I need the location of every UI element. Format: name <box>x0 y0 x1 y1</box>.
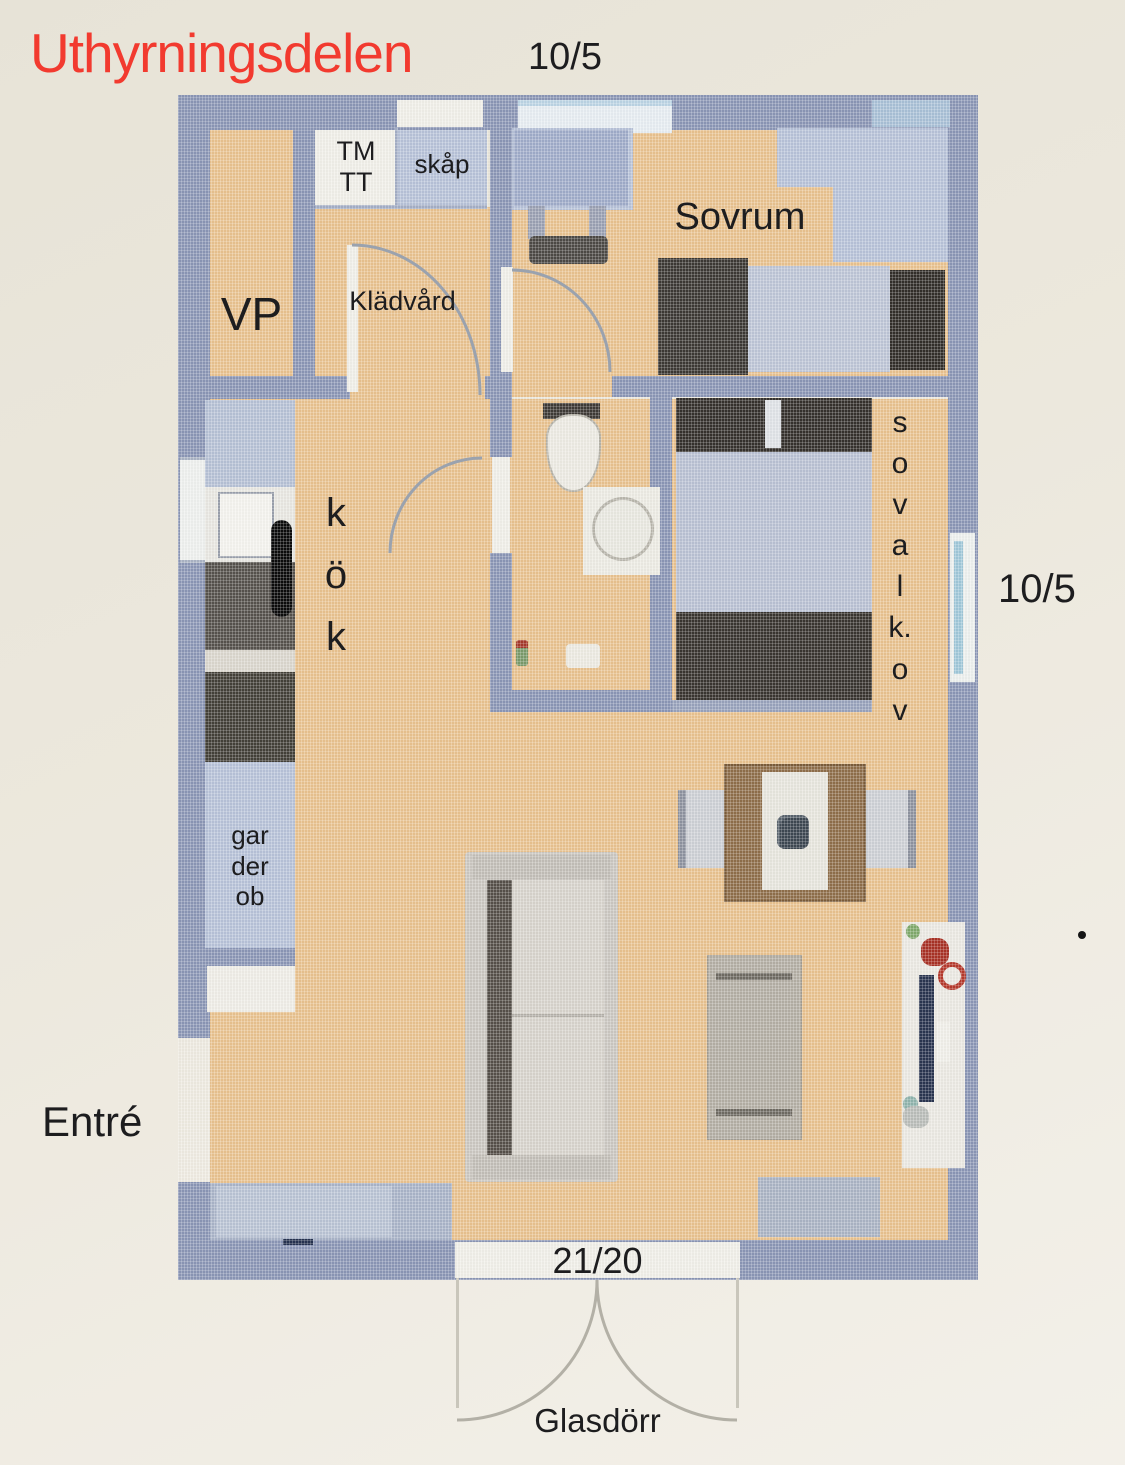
double-bed-blanket <box>676 612 872 700</box>
laundry-line-tt: TT <box>340 167 373 198</box>
bath-item-stool <box>566 644 600 668</box>
room-label-sovalkov: s o v a l k. o v <box>884 402 916 731</box>
annotation-entre: Entré <box>42 1098 142 1146</box>
single-bed-mattress <box>748 266 890 372</box>
doorway-kladvard <box>350 376 485 399</box>
laundry-bottom-line <box>315 205 487 209</box>
single-bed-headboard <box>658 258 748 375</box>
garderob-bottom-wall <box>205 948 295 966</box>
window-left-kitchen <box>180 457 206 563</box>
kok-letter-2: ö <box>325 544 347 606</box>
sofa-cushion-seam <box>512 1014 604 1017</box>
door-leaf-kladvard <box>347 245 358 392</box>
entrance-mat-inner <box>216 1186 392 1237</box>
wall-vp-right <box>293 95 315 399</box>
kitchen-sink-basin <box>218 492 274 558</box>
arc-glass-door-right <box>597 1280 737 1420</box>
room-label-kladvard: Klädvård <box>315 286 490 317</box>
room-label-kok: k ö k <box>318 482 354 668</box>
room-label-vp: VP <box>210 288 293 341</box>
laundry-line-tm: TM <box>337 136 376 167</box>
entrance-dark-line <box>283 1239 313 1245</box>
tv-screen-bar <box>919 975 934 1102</box>
desk-chair-seat <box>529 236 608 264</box>
tv-plant-green <box>906 924 920 939</box>
sovalkov-letter-2: o <box>892 443 909 484</box>
wall-bathroom-bottom <box>490 690 672 712</box>
bath-sink-bowl <box>592 497 654 561</box>
marker-annotation-bar <box>271 520 292 617</box>
kitchen-fridge <box>205 672 295 762</box>
sovalkov-letter-7: o <box>892 649 909 690</box>
sovrum-carpet-small <box>777 128 833 187</box>
arc-glass-door-left <box>457 1280 597 1420</box>
window-top-right <box>872 100 950 127</box>
wall-h1-left <box>178 376 350 399</box>
sovalkov-letter-1: s <box>893 402 908 443</box>
door-leaf-sovrum <box>501 267 513 372</box>
kok-letter-3: k <box>326 606 346 668</box>
glass-door-frame-right <box>736 1278 739 1408</box>
coffee-table-edge-bottom <box>716 1109 792 1116</box>
tv-wreath-red <box>938 962 966 990</box>
room-label-laundry: TM TT <box>315 136 397 198</box>
double-bed-pillow-gap <box>765 400 781 448</box>
annotation-glasdorr: Glasdörr <box>455 1402 740 1440</box>
sofa-cushions <box>512 880 604 1155</box>
kitchen-counter-strip <box>205 650 295 672</box>
page-title: Uthyrningsdelen <box>30 22 412 85</box>
bottom-right-mat <box>758 1177 880 1237</box>
window-top-skap <box>397 100 483 127</box>
doorway-sovrum <box>512 376 612 397</box>
glass-door-frame-left <box>456 1278 459 1408</box>
single-bed-footboard <box>890 270 945 370</box>
room-label-skap: skåp <box>397 150 487 180</box>
coffee-table-edge-top <box>716 973 792 980</box>
window-right-alcove-glass <box>954 541 963 674</box>
sofa-armrest-top <box>472 855 611 879</box>
bath-item-plant <box>516 640 528 666</box>
tv-item-gray <box>903 1106 929 1128</box>
sofa-backrest <box>487 880 512 1155</box>
desk <box>514 130 628 206</box>
floorplan-photo: Uthyrningsdelen 10/5 <box>0 0 1125 1465</box>
tv-remote-strip <box>937 1022 950 1062</box>
sovalkov-letter-5: l <box>897 566 904 607</box>
dining-table-plant <box>777 815 809 849</box>
garderob-line-3: ob <box>236 881 265 912</box>
garderob-line-1: gar <box>231 820 269 851</box>
sovalkov-letter-6: k. <box>888 607 911 648</box>
sofa-armrest-bottom <box>472 1155 611 1179</box>
sovrum-carpet-corner <box>833 128 948 262</box>
door-leaf-bathroom <box>492 457 510 553</box>
kitchen-counter-upper <box>205 400 295 487</box>
stray-dot <box>1078 931 1086 939</box>
white-closet <box>207 966 295 1012</box>
sovalkov-letter-8: v <box>893 690 908 731</box>
alcove-bed-step <box>672 700 872 712</box>
kok-letter-1: k <box>326 482 346 544</box>
desk-chair-arm-left <box>528 206 545 239</box>
label-garderob: gar der ob <box>205 820 295 912</box>
garderob-line-2: der <box>231 851 269 882</box>
sovalkov-letter-3: v <box>893 484 908 525</box>
annotation-door-measure: 21/20 <box>455 1240 740 1281</box>
room-label-sovrum: Sovrum <box>600 196 880 240</box>
tv-flowers-red <box>921 938 949 966</box>
double-bed-mattress <box>676 452 872 612</box>
dining-chair-right <box>860 790 916 868</box>
wall-v1-lower <box>490 553 512 712</box>
title-date: 10/5 <box>528 36 602 80</box>
sovalkov-letter-4: a <box>892 525 909 566</box>
annotation-right-measure: 10/5 <box>998 566 1076 612</box>
